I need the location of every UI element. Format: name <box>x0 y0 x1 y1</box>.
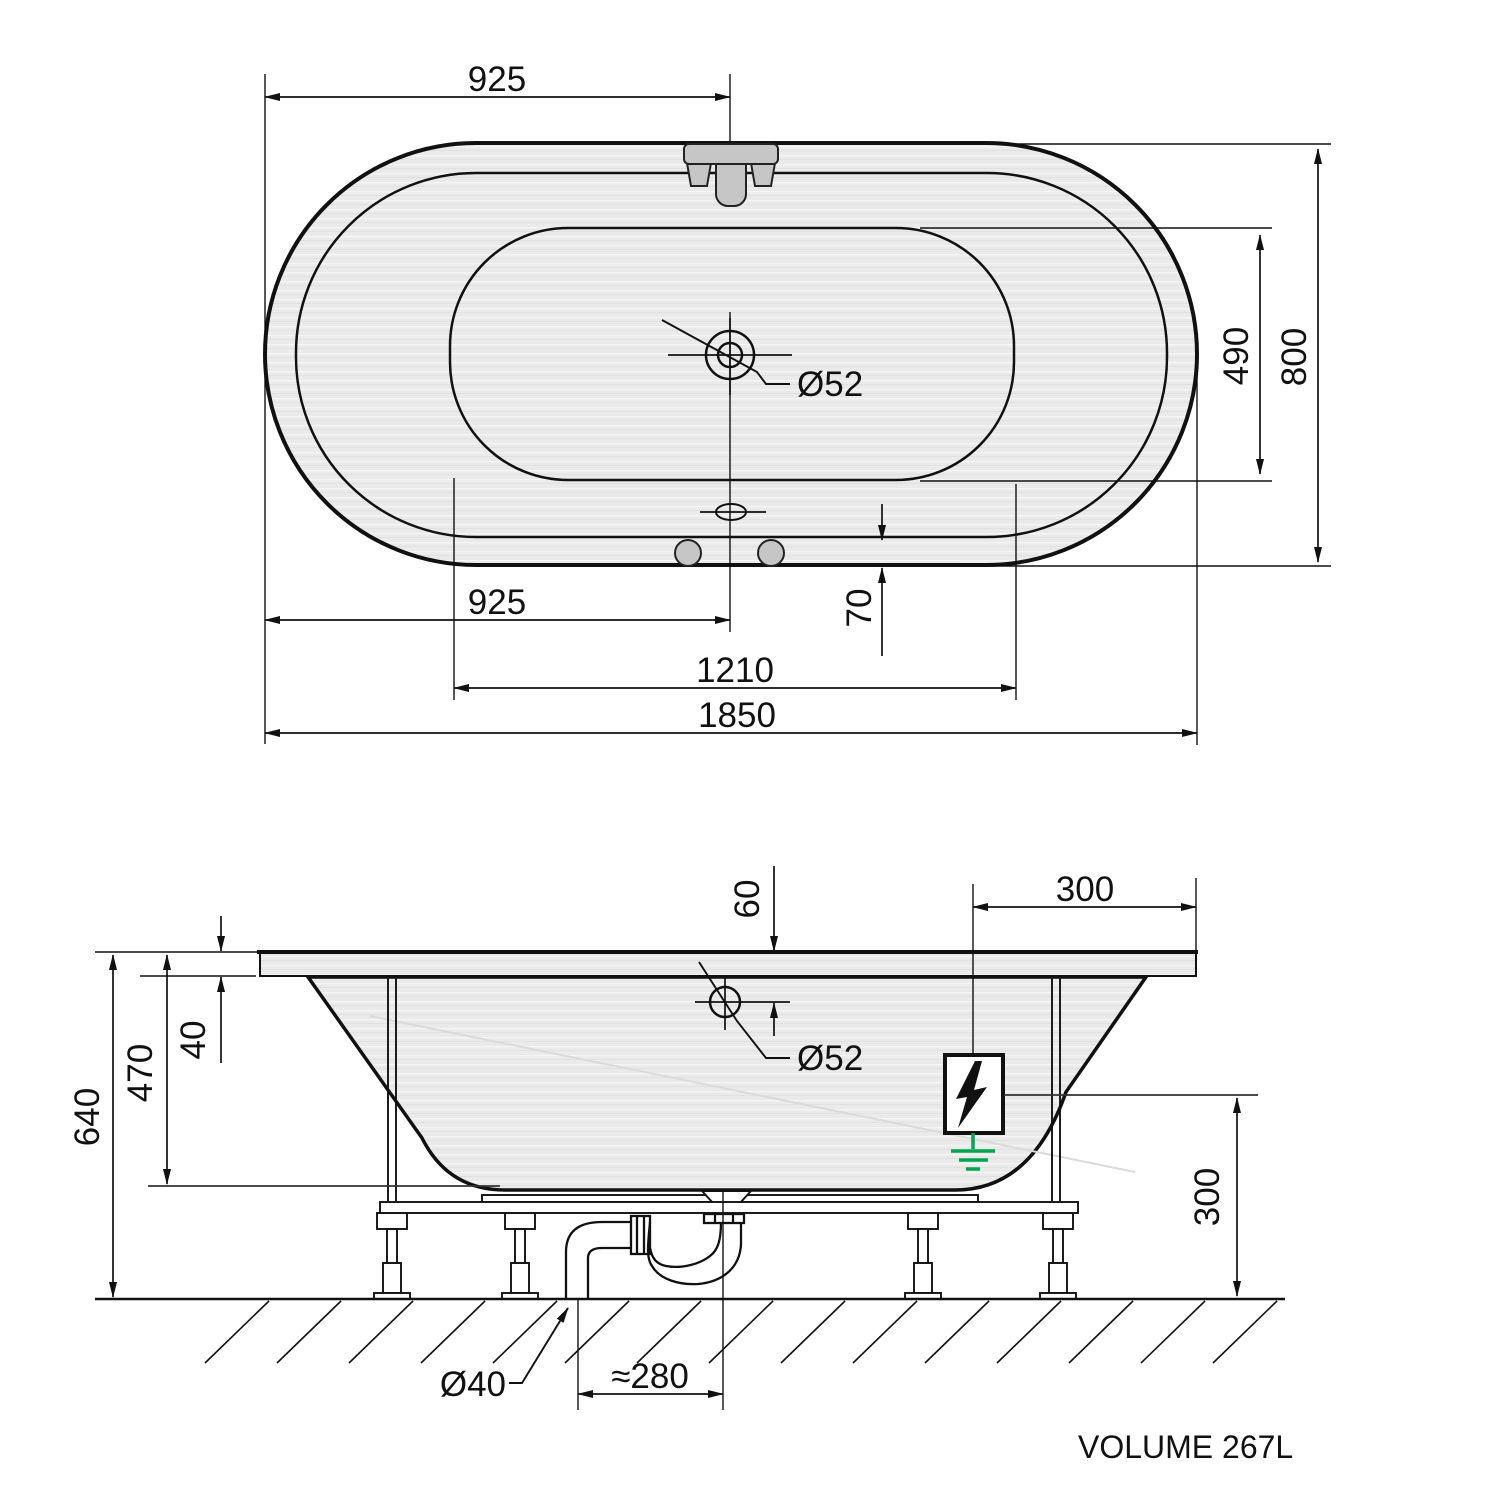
frame-leg <box>905 1213 941 1299</box>
label-overall-width: 800 <box>1275 328 1314 386</box>
floor-hatching <box>205 1301 1277 1363</box>
jet-hole-icon <box>758 540 784 566</box>
frame-leg <box>374 1213 410 1299</box>
label-overflow-from-rim: 60 <box>728 880 767 919</box>
label-drain-diameter: Ø52 <box>797 365 863 404</box>
label-trap-offset: ≈280 <box>611 1357 689 1396</box>
technical-drawing: 925 925 1210 1850 800 490 70 Ø52 <box>0 0 1500 1500</box>
drawing-page: 925 925 1210 1850 800 490 70 Ø52 <box>0 0 1500 1500</box>
frame-rail <box>380 1202 1078 1213</box>
rim-deck <box>260 952 1196 976</box>
frame-leg <box>1040 1213 1076 1299</box>
label-overall-height: 640 <box>68 1088 107 1146</box>
siphon-icon <box>566 1214 744 1299</box>
top-view: 925 925 1210 1850 800 490 70 Ø52 <box>265 60 1331 745</box>
frame-legs <box>374 1213 1076 1299</box>
jet-hole-icon <box>675 540 701 566</box>
label-drain-offset: 925 <box>468 583 526 622</box>
volume-label: VOLUME 267L <box>1078 1429 1293 1465</box>
label-electrical-height: 300 <box>1188 1168 1227 1226</box>
label-waste-pipe-diameter: Ø40 <box>440 1365 506 1404</box>
label-electrical-inset: 300 <box>1056 870 1114 909</box>
label-overflow-diameter: Ø52 <box>797 1039 863 1078</box>
label-inner-depth: 470 <box>121 1044 160 1102</box>
label-inner-width: 490 <box>1217 327 1256 385</box>
side-view: 640 470 40 60 300 300 Ø52 Ø40 ≈280 <box>68 866 1285 1410</box>
label-overall-length: 1850 <box>698 696 776 735</box>
frame-leg <box>502 1213 538 1299</box>
tub-body-section <box>308 977 1146 1190</box>
label-faucet-offset: 925 <box>468 60 526 99</box>
label-edge-offset: 70 <box>840 589 879 628</box>
label-rim-thickness: 40 <box>174 1021 213 1060</box>
label-inner-length: 1210 <box>696 651 774 690</box>
